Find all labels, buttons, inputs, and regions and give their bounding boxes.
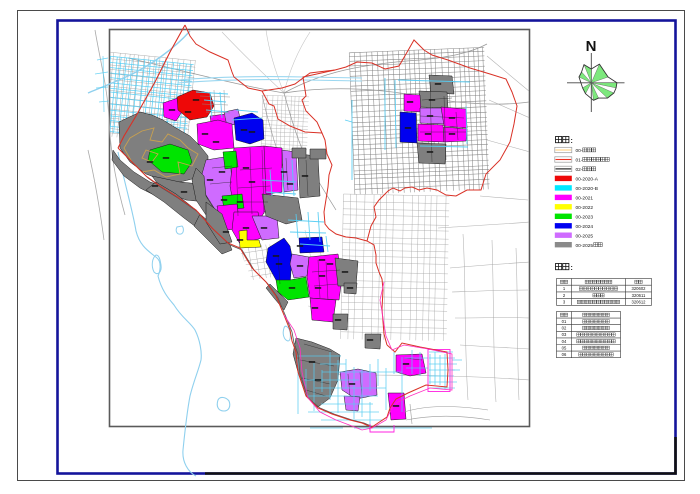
svg-text:3: 3: [563, 300, 566, 305]
svg-text:N: N: [586, 38, 597, 55]
svg-text::: :: [571, 265, 573, 272]
svg-text:01-: 01-: [576, 158, 583, 164]
svg-text:1: 1: [563, 286, 566, 291]
svg-text:05: 05: [562, 345, 567, 350]
svg-text:03: 03: [562, 332, 567, 337]
svg-text:320611: 320611: [632, 293, 646, 298]
svg-text:00-2025: 00-2025: [576, 233, 594, 239]
svg-text:06: 06: [562, 352, 567, 357]
svg-text:00-2021: 00-2021: [576, 196, 594, 202]
svg-text:320612: 320612: [632, 300, 647, 305]
svg-text:02: 02: [562, 326, 567, 331]
svg-text:00-: 00-: [576, 148, 583, 154]
svg-text:00-2020-B: 00-2020-B: [576, 186, 598, 192]
svg-text:02-: 02-: [576, 167, 583, 173]
svg-text:00-2022: 00-2022: [576, 205, 594, 211]
svg-text:01: 01: [562, 319, 567, 324]
svg-text:00-2020-A: 00-2020-A: [576, 177, 599, 183]
svg-text::: :: [571, 138, 573, 145]
svg-text:320602: 320602: [632, 286, 647, 291]
svg-text:00-2025: 00-2025: [576, 243, 594, 249]
svg-text:04: 04: [562, 339, 567, 344]
svg-text:00-2023: 00-2023: [576, 215, 594, 221]
svg-text:00-2024: 00-2024: [576, 224, 594, 230]
svg-text:2: 2: [563, 293, 566, 298]
